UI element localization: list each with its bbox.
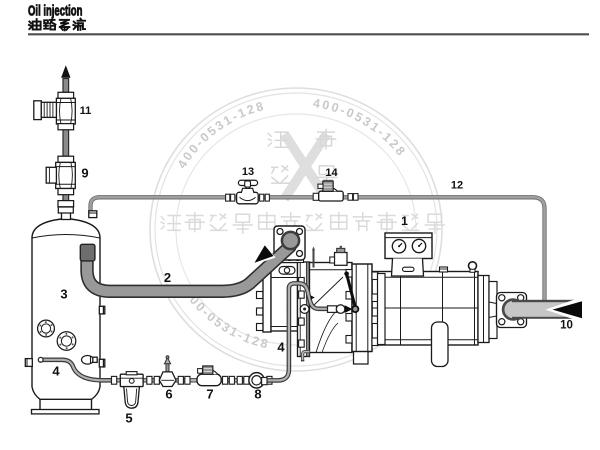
svg-text:400-0531-128: 400-0531-128 — [175, 99, 267, 171]
svg-text:3: 3 — [60, 287, 67, 302]
svg-text:12: 12 — [451, 180, 463, 192]
svg-text:2: 2 — [164, 270, 171, 285]
svg-text:Oil injection: Oil injection — [28, 3, 82, 20]
svg-text:5: 5 — [125, 411, 132, 426]
svg-text:400-0531-128: 400-0531-128 — [312, 96, 409, 160]
svg-text:4: 4 — [277, 340, 285, 355]
svg-text:4: 4 — [52, 364, 60, 379]
svg-text:6: 6 — [165, 387, 172, 402]
svg-text:8: 8 — [254, 387, 261, 402]
svg-text:9: 9 — [81, 166, 88, 181]
svg-text:7: 7 — [206, 387, 213, 402]
svg-text:1: 1 — [401, 214, 408, 228]
svg-text:14: 14 — [325, 167, 338, 179]
svg-text:10: 10 — [560, 320, 573, 332]
svg-text:11: 11 — [80, 105, 92, 117]
svg-text:13: 13 — [242, 166, 254, 178]
